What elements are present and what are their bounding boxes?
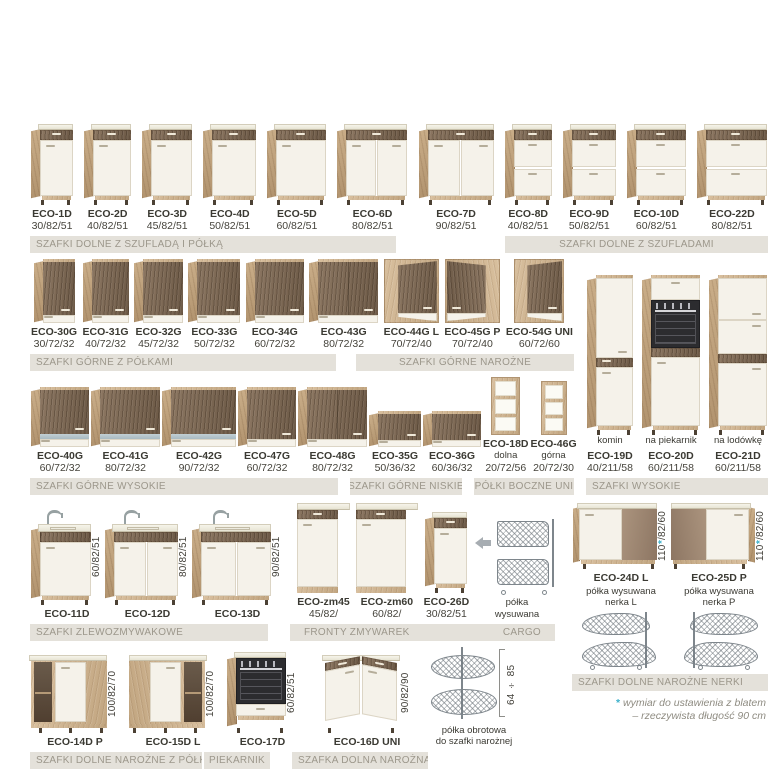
row-upper-high-cabinets: ECO-40G60/72/32ECO-41G80/72/32ECO-42G90/… (30, 377, 574, 474)
cabinet-figure (563, 124, 616, 205)
cabinet-door (93, 140, 131, 196)
cabinet-door (147, 542, 179, 596)
cabinet-leg (164, 728, 167, 733)
product-code: ECO-16D UNI (334, 736, 401, 748)
handle-icon (218, 145, 227, 147)
handle-icon (290, 309, 299, 311)
handle-icon (75, 428, 84, 430)
cabinet-leg (265, 600, 268, 605)
cabinet-figure (337, 124, 407, 205)
handle-icon (146, 428, 155, 430)
cabinet-door (398, 261, 437, 313)
drawer-front (93, 130, 131, 140)
kidney-shelf (684, 642, 758, 667)
cabinet-leg (347, 200, 350, 205)
cabinet-leg (115, 600, 118, 605)
plinth (131, 724, 203, 728)
product-code: ECO-24D L (594, 572, 649, 584)
handle-icon (752, 325, 761, 327)
column-tall-cabinets: kominECO-19D40/211/58na piekarnikECO-20D… (586, 259, 768, 495)
upper-cabinet-figure (134, 259, 183, 323)
handle-icon (166, 667, 175, 669)
product-card: ECO-1D30/82/51 (30, 124, 74, 232)
cabinet-door (378, 414, 421, 440)
barrow-1: SZAFKI DOLNE Z SZUFLADĄ I PÓŁKĄ SZAFKI D… (30, 236, 768, 253)
cabinet-figure (425, 512, 467, 593)
product-code: ECO-45G P (444, 326, 500, 338)
product-code: ECO-30G (31, 326, 77, 338)
product-code: ECO-25D P (691, 572, 746, 584)
cabinet-door (514, 169, 552, 196)
carousel-shelf (431, 689, 497, 715)
product-code: ECO-2D (88, 208, 128, 220)
product-dims: 64 ÷ 85 (506, 647, 518, 723)
product-dims: 80/82/51 (712, 220, 753, 232)
handle-icon (372, 133, 381, 135)
handle-icon (207, 547, 216, 549)
product-card: ECO-44G L70/72/40 (383, 259, 440, 350)
product-card: 80/82/51ECO-12D (104, 509, 191, 620)
product-code: ECO-8D (508, 208, 548, 220)
section-bar-fronty-cargo: FRONTY ZMYWAREK CARGO (290, 624, 555, 641)
cabinet-leg (320, 200, 323, 205)
oven-glass (655, 314, 696, 344)
upper-cabinet-figure (369, 411, 421, 447)
product-dims: 45/82/ (309, 608, 338, 620)
product-dims: 100/82/70 (107, 655, 119, 733)
cabinet-leg (85, 600, 88, 605)
product-code: ECO-15D L (146, 736, 201, 748)
dishwasher-front (356, 519, 406, 587)
handle-icon (446, 521, 455, 523)
handle-icon (440, 533, 449, 535)
drawer-front (40, 532, 91, 542)
handle-icon (319, 316, 328, 318)
product-dims: 40/72/32 (85, 338, 126, 350)
product-dims: 60/36/32 (432, 462, 473, 474)
product-code: ECO-18D (483, 438, 529, 450)
drawer-front (596, 358, 633, 367)
handle-icon (222, 428, 231, 430)
barrow-nerki: SZAFKI DOLNE NAROŻNE NERKI (572, 674, 768, 691)
corner-upper-figure (514, 259, 564, 323)
cabinet-door (40, 542, 91, 596)
cabinet-leg (719, 430, 722, 435)
cabinet-figure (697, 124, 767, 205)
cabinet-door (212, 140, 256, 196)
upper-cabinet-figure (162, 387, 236, 447)
drawer-front (114, 532, 178, 542)
kidney-shelf-figure (680, 612, 758, 670)
cabinet-door (651, 357, 700, 426)
product-code: ECO-34G (252, 326, 298, 338)
cabinet-figure (203, 124, 256, 205)
bar-spacer (396, 236, 505, 253)
product-code: ECO-5D (277, 208, 317, 220)
product-code: ECO-33G (191, 326, 237, 338)
product-dims: 50/82/51 (569, 220, 610, 232)
handle-icon (602, 372, 611, 374)
cabinet-door (346, 140, 376, 196)
group-sinks: 60/82/51ECO-11D80/82/51ECO-12D90/82/51EC… (30, 509, 280, 620)
section-bar-gorne-wysokie: SZAFKI GÓRNE WYSOKIE (30, 478, 338, 495)
drawer-front (514, 130, 552, 140)
product-code: ECO-48G (309, 450, 355, 462)
caster-wheel (542, 590, 547, 595)
handle-icon (362, 524, 371, 526)
handle-icon (282, 433, 291, 435)
cabinet-door (579, 509, 622, 560)
cabinet-leg (172, 600, 175, 605)
sink-cabinet-figure (31, 509, 91, 605)
cabinet-door (636, 140, 686, 167)
catalog-page: ECO-1D30/82/51ECO-2D40/82/51ECO-3D45/82/… (0, 0, 770, 770)
cabinet-door (255, 315, 304, 323)
barrow-tall: SZAFKI WYSOKIE (586, 478, 768, 495)
product-card: ECO-7D90/82/51 (418, 124, 495, 232)
handle-icon (256, 316, 265, 318)
row-tall-cabinets: kominECO-19D40/211/58na piekarnikECO-20D… (586, 275, 768, 474)
product-card: ECO-42G90/72/32 (161, 387, 237, 474)
carousel-shelf (431, 655, 495, 679)
cabinet-door (171, 439, 236, 447)
product-dims: 100/82/70 (205, 655, 217, 733)
drawer-front (718, 354, 767, 363)
cabinet-door (276, 140, 326, 196)
barrow-4: SZAFKI ZLEWOZMYWAKOWE FRONTY ZMYWAREK CA… (30, 624, 560, 641)
drawer-front (236, 704, 286, 716)
drawer-front (212, 130, 256, 140)
worktop (297, 503, 350, 510)
cabinet-door (43, 315, 75, 323)
cabinet-door (718, 320, 767, 354)
product-dims: 45/82/51 (147, 220, 188, 232)
product-dims: 30/72/32 (34, 338, 75, 350)
product-dims: 60/82/ (372, 608, 401, 620)
cabinet-door (428, 140, 461, 196)
cabinet-leg (94, 200, 97, 205)
product-card: ECO-32G45/72/32 (133, 259, 184, 350)
product-dims: 30/82/51 (426, 608, 467, 620)
handle-icon (433, 441, 442, 443)
cabinet-door (447, 261, 486, 313)
cabinet-door (572, 169, 616, 196)
plinth (638, 196, 684, 200)
handle-icon (353, 433, 362, 435)
dishwasher-front-figure (356, 503, 418, 593)
corner-base-figure (671, 503, 755, 569)
product-card: ECO-41G80/72/32 (90, 387, 161, 474)
cabinet-leg (707, 200, 710, 205)
cabinet-door (432, 414, 481, 440)
product-card: ECO-46Ggórna20/72/30 (530, 381, 578, 474)
handle-icon (734, 514, 743, 516)
product-dims: 20/72/56 (485, 462, 526, 474)
product-caption: półka wysuwananerka L (586, 586, 656, 609)
product-card: ECO-47G60/72/32 (237, 387, 297, 474)
drawer-front (636, 130, 686, 140)
cabinet-door (718, 363, 767, 426)
product-dims: 80/72/32 (323, 338, 364, 350)
handle-icon (229, 133, 238, 135)
product-code: ECO-10D (634, 208, 680, 220)
bar-spacer (462, 478, 474, 495)
cabinet-leg (391, 728, 394, 733)
product-code: ECO-13D (215, 608, 261, 620)
cabinet-leg (237, 728, 240, 733)
product-card: ECO-45G P70/72/40 (443, 259, 501, 350)
cabinet-door (706, 509, 749, 560)
cabinet-door (318, 262, 378, 315)
product-code: ECO-26D (424, 596, 470, 608)
cabinet-door (40, 390, 89, 434)
section-bar-narozne-polka: SZAFKI DOLNE NAROŻNE Z PÓŁKĄ (30, 752, 202, 769)
product-card: ECO-54G UNI60/72/60 (505, 259, 574, 350)
cabinet-leg (401, 200, 404, 205)
product-dims: 20/72/30 (533, 462, 574, 474)
product-dims: 90/72/32 (179, 462, 220, 474)
cabinet-figure (84, 124, 131, 205)
cabinet-door (92, 315, 129, 323)
sink-cabinet-figure (105, 509, 178, 605)
kidney-shelf (582, 642, 656, 667)
handle-icon (528, 173, 537, 175)
cabinet-door (151, 140, 192, 196)
drawer-front (572, 130, 616, 140)
band-bottom-left: 60/82/51ECO-11D80/82/51ECO-12D90/82/51EC… (30, 503, 560, 769)
corner-panel (622, 509, 657, 560)
product-code: ECO-31G (83, 326, 129, 338)
product-card: ECO-8D40/82/51 (504, 124, 553, 232)
cabinet-door (378, 440, 421, 447)
cabinet-door (143, 315, 183, 323)
handle-icon (752, 368, 761, 370)
handle-icon (167, 133, 176, 135)
band-bottom: 60/82/51ECO-11D80/82/51ECO-12D90/82/51EC… (30, 503, 768, 769)
product-code: ECO-9D (569, 208, 609, 220)
wire-basket (497, 521, 549, 547)
section-bar-dolne-szufladami: SZAFKI DOLNE Z SZUFLADAMI (505, 236, 768, 253)
cabinet-door (718, 278, 767, 320)
handle-icon (144, 316, 153, 318)
cabinet-leg (186, 200, 189, 205)
drawer-front (434, 518, 467, 528)
corner-panel (671, 509, 706, 560)
cabinet-leg (41, 600, 44, 605)
carousel-figure (430, 647, 496, 723)
product-dims: 60/82/51 (276, 220, 317, 232)
cabinet-door (596, 278, 633, 358)
cabinet-door (514, 140, 552, 167)
product-card: ECO-18Ddolna20/72/56 (482, 377, 530, 474)
caster-wheel (698, 665, 703, 670)
cabinet-figure (267, 124, 326, 205)
cabinet-leg (328, 728, 331, 733)
product-dims: 30/82/51 (32, 220, 73, 232)
product-card: ECO-5D60/82/51 (266, 124, 327, 232)
product-dims: 60/72/32 (254, 338, 295, 350)
product-dims: 40/211/58 (587, 462, 633, 474)
handle-icon (169, 309, 178, 311)
cabinet-figure (505, 124, 552, 205)
handle-icon (364, 309, 373, 311)
asterisk-note: * (755, 540, 766, 544)
cabinet-leg (694, 430, 697, 435)
plinth (720, 426, 765, 430)
cabinet-door (377, 140, 407, 196)
product-dims: 110*/82/60 (657, 503, 669, 569)
footnote: * wymiar do ustawienia z blatem – rzeczy… (572, 697, 768, 724)
section-bar-gorne-niskie: SZAFKI GÓRNE NISKIE (350, 478, 462, 495)
cabinet-leg (627, 430, 630, 435)
handle-icon (656, 173, 665, 175)
handle-icon (467, 434, 476, 436)
cabinet-leg (202, 600, 205, 605)
shelf-compartment (545, 385, 563, 398)
handle-icon (731, 173, 740, 175)
plinth (348, 196, 405, 200)
dimension-line (499, 649, 505, 717)
drawer-front (297, 510, 338, 519)
oven-handle (655, 310, 696, 312)
upper-cabinet-figure (238, 387, 296, 447)
product-card: ECO-36G60/36/32 (422, 411, 482, 474)
cabinet-door (197, 262, 240, 315)
handle-icon (618, 351, 627, 353)
product-dims: 80/72/32 (105, 462, 146, 474)
product-code: ECO-46G (531, 438, 577, 450)
shelf-compartment (545, 402, 563, 415)
section-bar-piekarnik: PIEKARNIK (204, 752, 270, 769)
cabinet-leg (125, 200, 128, 205)
product-code: ECO-21D (715, 450, 761, 462)
drawer-front (706, 130, 767, 140)
handle-icon (731, 144, 740, 146)
product-dims: 40/82/51 (87, 220, 128, 232)
product-caption: półkawysuwana (495, 597, 539, 620)
caster-wheel (501, 590, 506, 595)
cabinet-leg (651, 564, 654, 569)
sink-basin (127, 527, 159, 530)
section-bar-nerki: SZAFKI DOLNE NAROŻNE NERKI (572, 674, 768, 691)
caster-wheel (745, 665, 750, 670)
oven-cabinet-figure (227, 652, 286, 733)
cabinet-door (171, 390, 236, 434)
handle-icon (41, 440, 50, 442)
cabinet-leg (610, 200, 613, 205)
handle-icon (528, 133, 537, 135)
product-card: ECO-3D45/82/51 (141, 124, 193, 232)
handle-icon (379, 441, 388, 443)
plinth (516, 196, 550, 200)
tall-cabinet-figure (709, 275, 767, 435)
cabinet-door (636, 169, 686, 196)
row-upper-cabinets: ECO-30G30/72/32ECO-31G40/72/32ECO-32G45/… (30, 259, 574, 350)
cabinet-leg (597, 430, 600, 435)
handle-icon (93, 316, 102, 318)
cabinet-door (237, 542, 272, 596)
tall-cabinet-figure (642, 275, 700, 435)
handle-icon (548, 307, 557, 309)
product-dims: 50/72/32 (194, 338, 235, 350)
kidney-shelf (690, 613, 758, 635)
product-card: ECO-30G30/72/32 (30, 259, 78, 350)
handle-icon (656, 133, 665, 135)
product-code: ECO-43G (321, 326, 367, 338)
footnote-text2: – rzeczywista długość 90 cm (572, 710, 766, 724)
product-card: ECO-22D80/82/51 (696, 124, 768, 232)
product-code: ECO-32G (135, 326, 181, 338)
cabinet-leg (100, 728, 103, 733)
wire-basket (497, 559, 549, 585)
product-card: ECO-43G80/72/32 (308, 259, 379, 350)
product-dims: 60/72/32 (40, 462, 81, 474)
product-dims: 60/82/51 (286, 652, 298, 733)
section-bar-dolne-szuflada-polka: SZAFKI DOLNE Z SZUFLADĄ I PÓŁKĄ (30, 236, 396, 253)
handle-icon (46, 547, 55, 549)
oven-handle (240, 668, 282, 670)
product-dims: 60/72/60 (519, 338, 560, 350)
product-card: ECO-26D30/82/51 (423, 512, 471, 620)
product-card: 100/82/70ECO-14D P (30, 655, 120, 748)
handle-icon (375, 661, 384, 665)
handle-icon (120, 547, 129, 549)
cabinet-leg (194, 728, 197, 733)
handle-icon (101, 440, 110, 442)
product-note: na piekarnik (645, 435, 696, 446)
cabinet-leg (674, 564, 677, 569)
handle-icon (589, 173, 598, 175)
upper-cabinet-figure (423, 411, 481, 447)
cabinet-leg (67, 200, 70, 205)
row-sink-cabinets: 60/82/51ECO-11D80/82/51ECO-12D90/82/51EC… (30, 503, 560, 620)
cabinet-door (197, 315, 240, 323)
worktop (112, 524, 178, 532)
product-code: ECO-4D (210, 208, 250, 220)
handle-icon (671, 282, 680, 284)
handle-icon (61, 667, 70, 669)
product-card: 90/82/90ECO-16D UNI (321, 653, 413, 748)
dishwasher-front (297, 519, 338, 587)
cabinet-leg (637, 200, 640, 205)
plinth (297, 587, 338, 593)
product-card: ECO-33G50/72/32 (187, 259, 241, 350)
open-shelf-figure (541, 381, 567, 435)
cabinet-leg (280, 728, 283, 733)
caster-wheel (637, 665, 642, 670)
product-dims: 60/82/51 (636, 220, 677, 232)
band-middle-left: ECO-30G30/72/32ECO-31G40/72/32ECO-32G45/… (30, 259, 574, 495)
sink-basin (215, 527, 250, 530)
cabinet-leg (152, 200, 155, 205)
footnote-text1: wymiar do ustawienia z blatem (623, 697, 766, 709)
handle-icon (282, 145, 291, 147)
cabinet-door (40, 439, 89, 447)
product-card: ECO-6D80/82/51 (336, 124, 408, 232)
shelf-compartment (545, 418, 563, 431)
open-shelf-figure (491, 377, 520, 435)
cabinet-leg (546, 200, 549, 205)
product-card: ECO-35G50/36/32 (368, 411, 422, 474)
cabinet-door (201, 542, 236, 596)
corner-l-figure (322, 653, 400, 733)
barrow-3: SZAFKI GÓRNE WYSOKIE SZAFKI GÓRNE NISKIE… (30, 478, 574, 495)
drawer-front (201, 532, 271, 542)
product-dims: 45/72/32 (138, 338, 179, 350)
corner-shelf-figure (31, 655, 107, 733)
product-card: 110*/82/60ECO-24D Lpółka wysuwananerka L (572, 503, 670, 670)
drawer-front (346, 130, 407, 140)
